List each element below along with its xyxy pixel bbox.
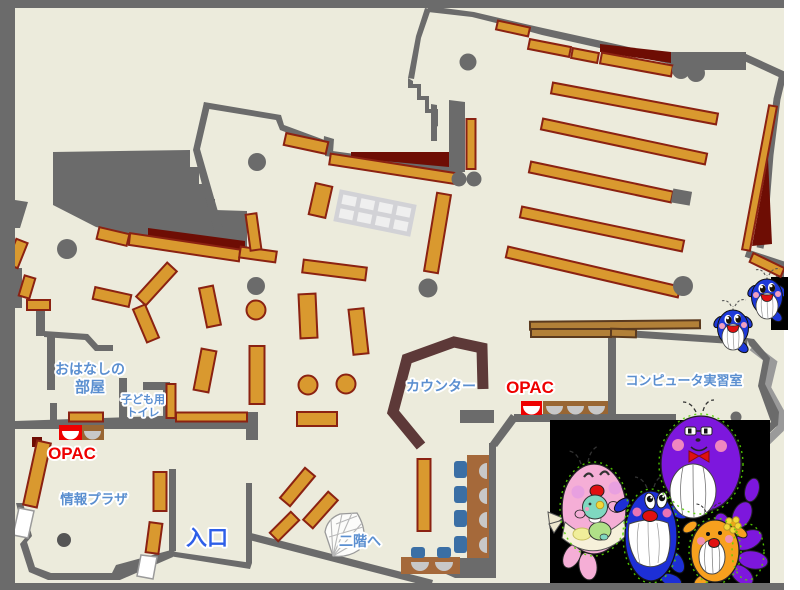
svg-text:入口: 入口	[186, 527, 228, 550]
svg-text:トイレ: トイレ	[127, 406, 160, 419]
svg-text:部屋: 部屋	[75, 378, 105, 396]
svg-text:OPAC: OPAC	[48, 444, 96, 463]
svg-text:二階へ: 二階へ	[339, 533, 381, 549]
svg-text:情報プラザ: 情報プラザ	[60, 491, 128, 507]
svg-text:子ども用: 子ども用	[121, 393, 165, 406]
svg-text:カウンター: カウンター	[406, 378, 476, 394]
svg-text:OPAC: OPAC	[506, 378, 554, 397]
svg-text:コンピュータ実習室: コンピュータ実習室	[625, 373, 742, 388]
svg-text:おはなしの: おはなしの	[55, 361, 125, 377]
